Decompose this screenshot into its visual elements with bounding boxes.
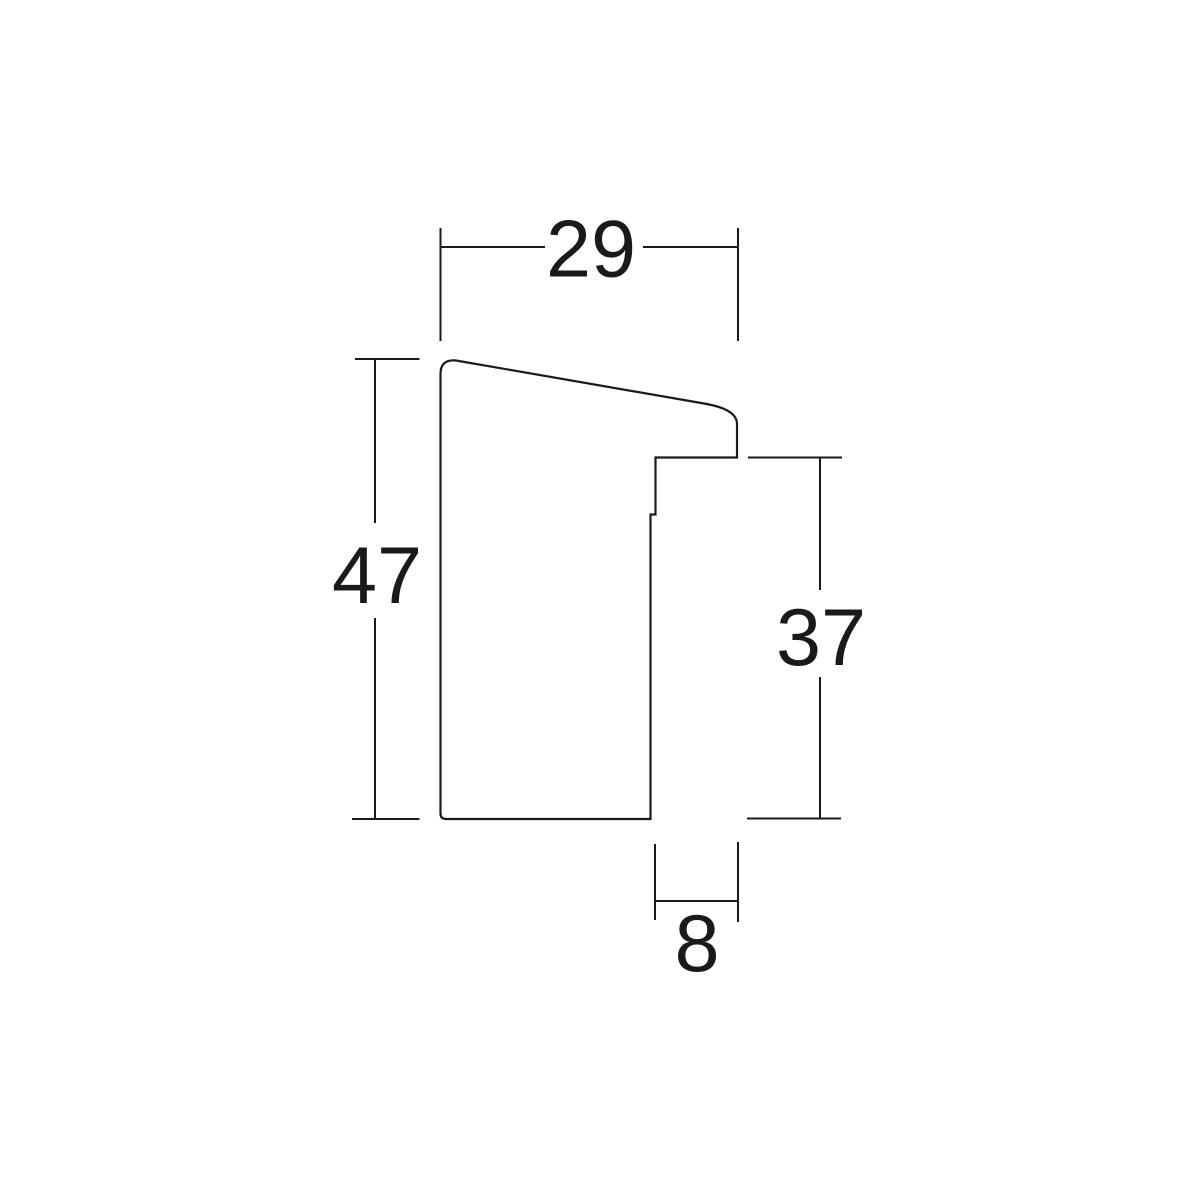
drawing-strokes bbox=[352, 228, 842, 922]
profile-outline bbox=[441, 360, 738, 819]
dimension-label-bottom-width: 8 bbox=[674, 899, 719, 989]
dimension-label-left-height: 47 bbox=[332, 531, 422, 621]
dimension-labels: 29 47 37 8 bbox=[332, 205, 866, 990]
dimension-label-top-width: 29 bbox=[546, 205, 636, 295]
technical-drawing-canvas: 29 47 37 8 bbox=[0, 0, 1200, 1200]
moulding-profile-drawing: 29 47 37 8 bbox=[0, 0, 1200, 1200]
dimension-label-right-height: 37 bbox=[776, 593, 866, 683]
